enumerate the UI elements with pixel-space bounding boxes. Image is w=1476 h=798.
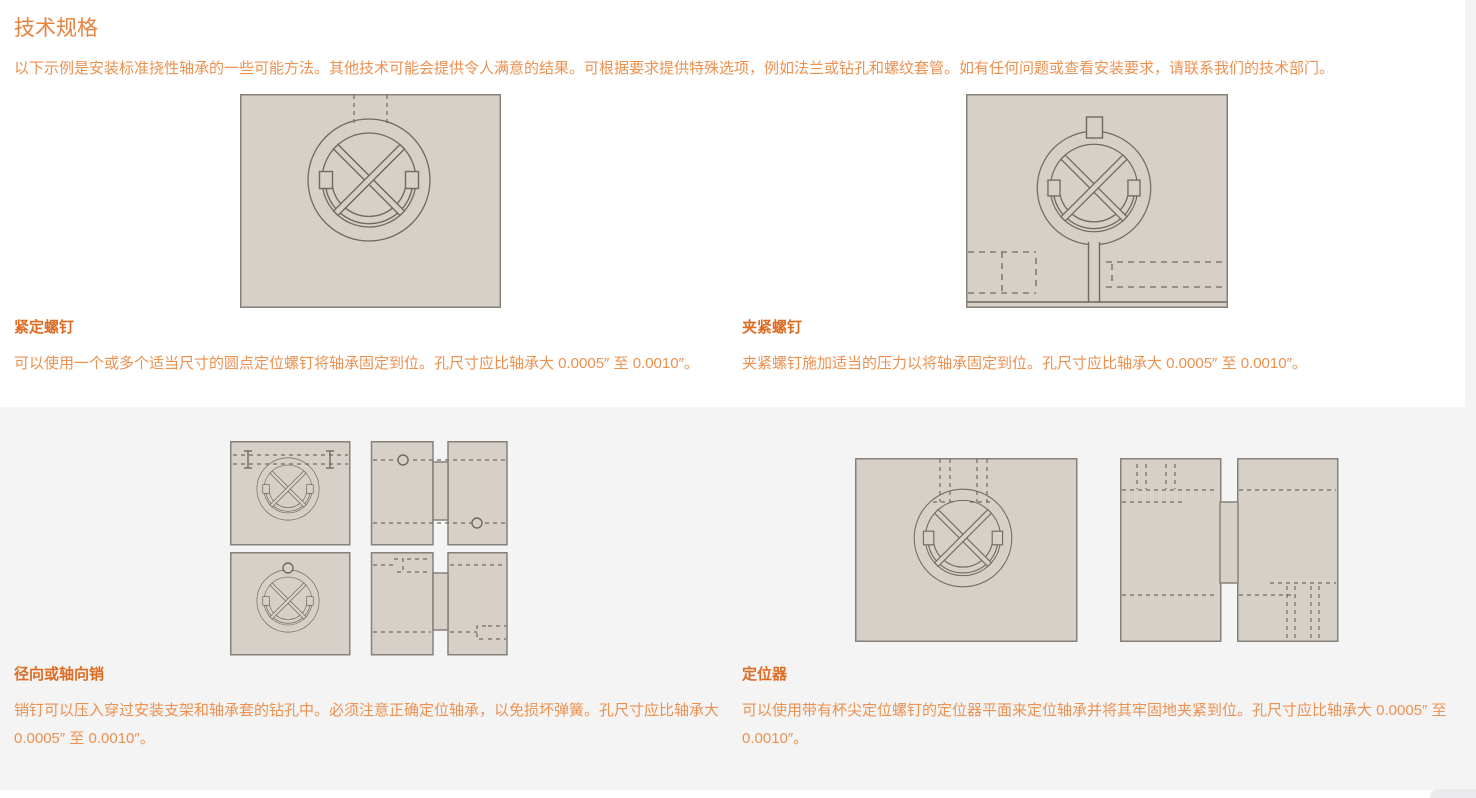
radial-axial-pin-diagram	[230, 438, 510, 656]
intro-paragraph: 以下示例是安装标准挠性轴承的一些可能方法。其他技术可能会提供令人满意的结果。可根…	[14, 57, 1414, 78]
set-screw-diagram	[240, 94, 501, 309]
technical-specs-page: { "page": { "title": "技术规格", "intro": "以…	[0, 0, 1476, 798]
scroll-top-button[interactable]	[1430, 789, 1476, 798]
method-desc-clamp-screw: 夹紧螺钉施加适当的压力以将轴承固定到位。孔尺寸应比轴承大 0.0005″ 至 0…	[742, 350, 1456, 378]
method-desc-locator: 可以使用带有杯尖定位螺钉的定位器平面来定位轴承并将其牢固地夹紧到位。孔尺寸应比轴…	[742, 697, 1456, 753]
method-desc-set-screw: 可以使用一个或多个适当尺寸的圆点定位螺钉将轴承固定到位。孔尺寸应比轴承大 0.0…	[14, 350, 728, 378]
locator-diagram	[855, 458, 1339, 643]
method-label-radial-axial-pin: 径向或轴向销	[14, 663, 104, 684]
clamp-screw-diagram	[966, 94, 1228, 309]
method-label-set-screw: 紧定螺钉	[14, 316, 74, 337]
method-desc-radial-axial-pin: 销钉可以压入穿过安装支架和轴承套的钻孔中。必须注意正确定位轴承，以免损坏弹簧。孔…	[14, 697, 728, 753]
method-label-locator: 定位器	[742, 663, 787, 684]
right-margin-strip	[1465, 0, 1476, 407]
page-title: 技术规格	[14, 12, 98, 42]
method-label-clamp-screw: 夹紧螺钉	[742, 316, 802, 337]
